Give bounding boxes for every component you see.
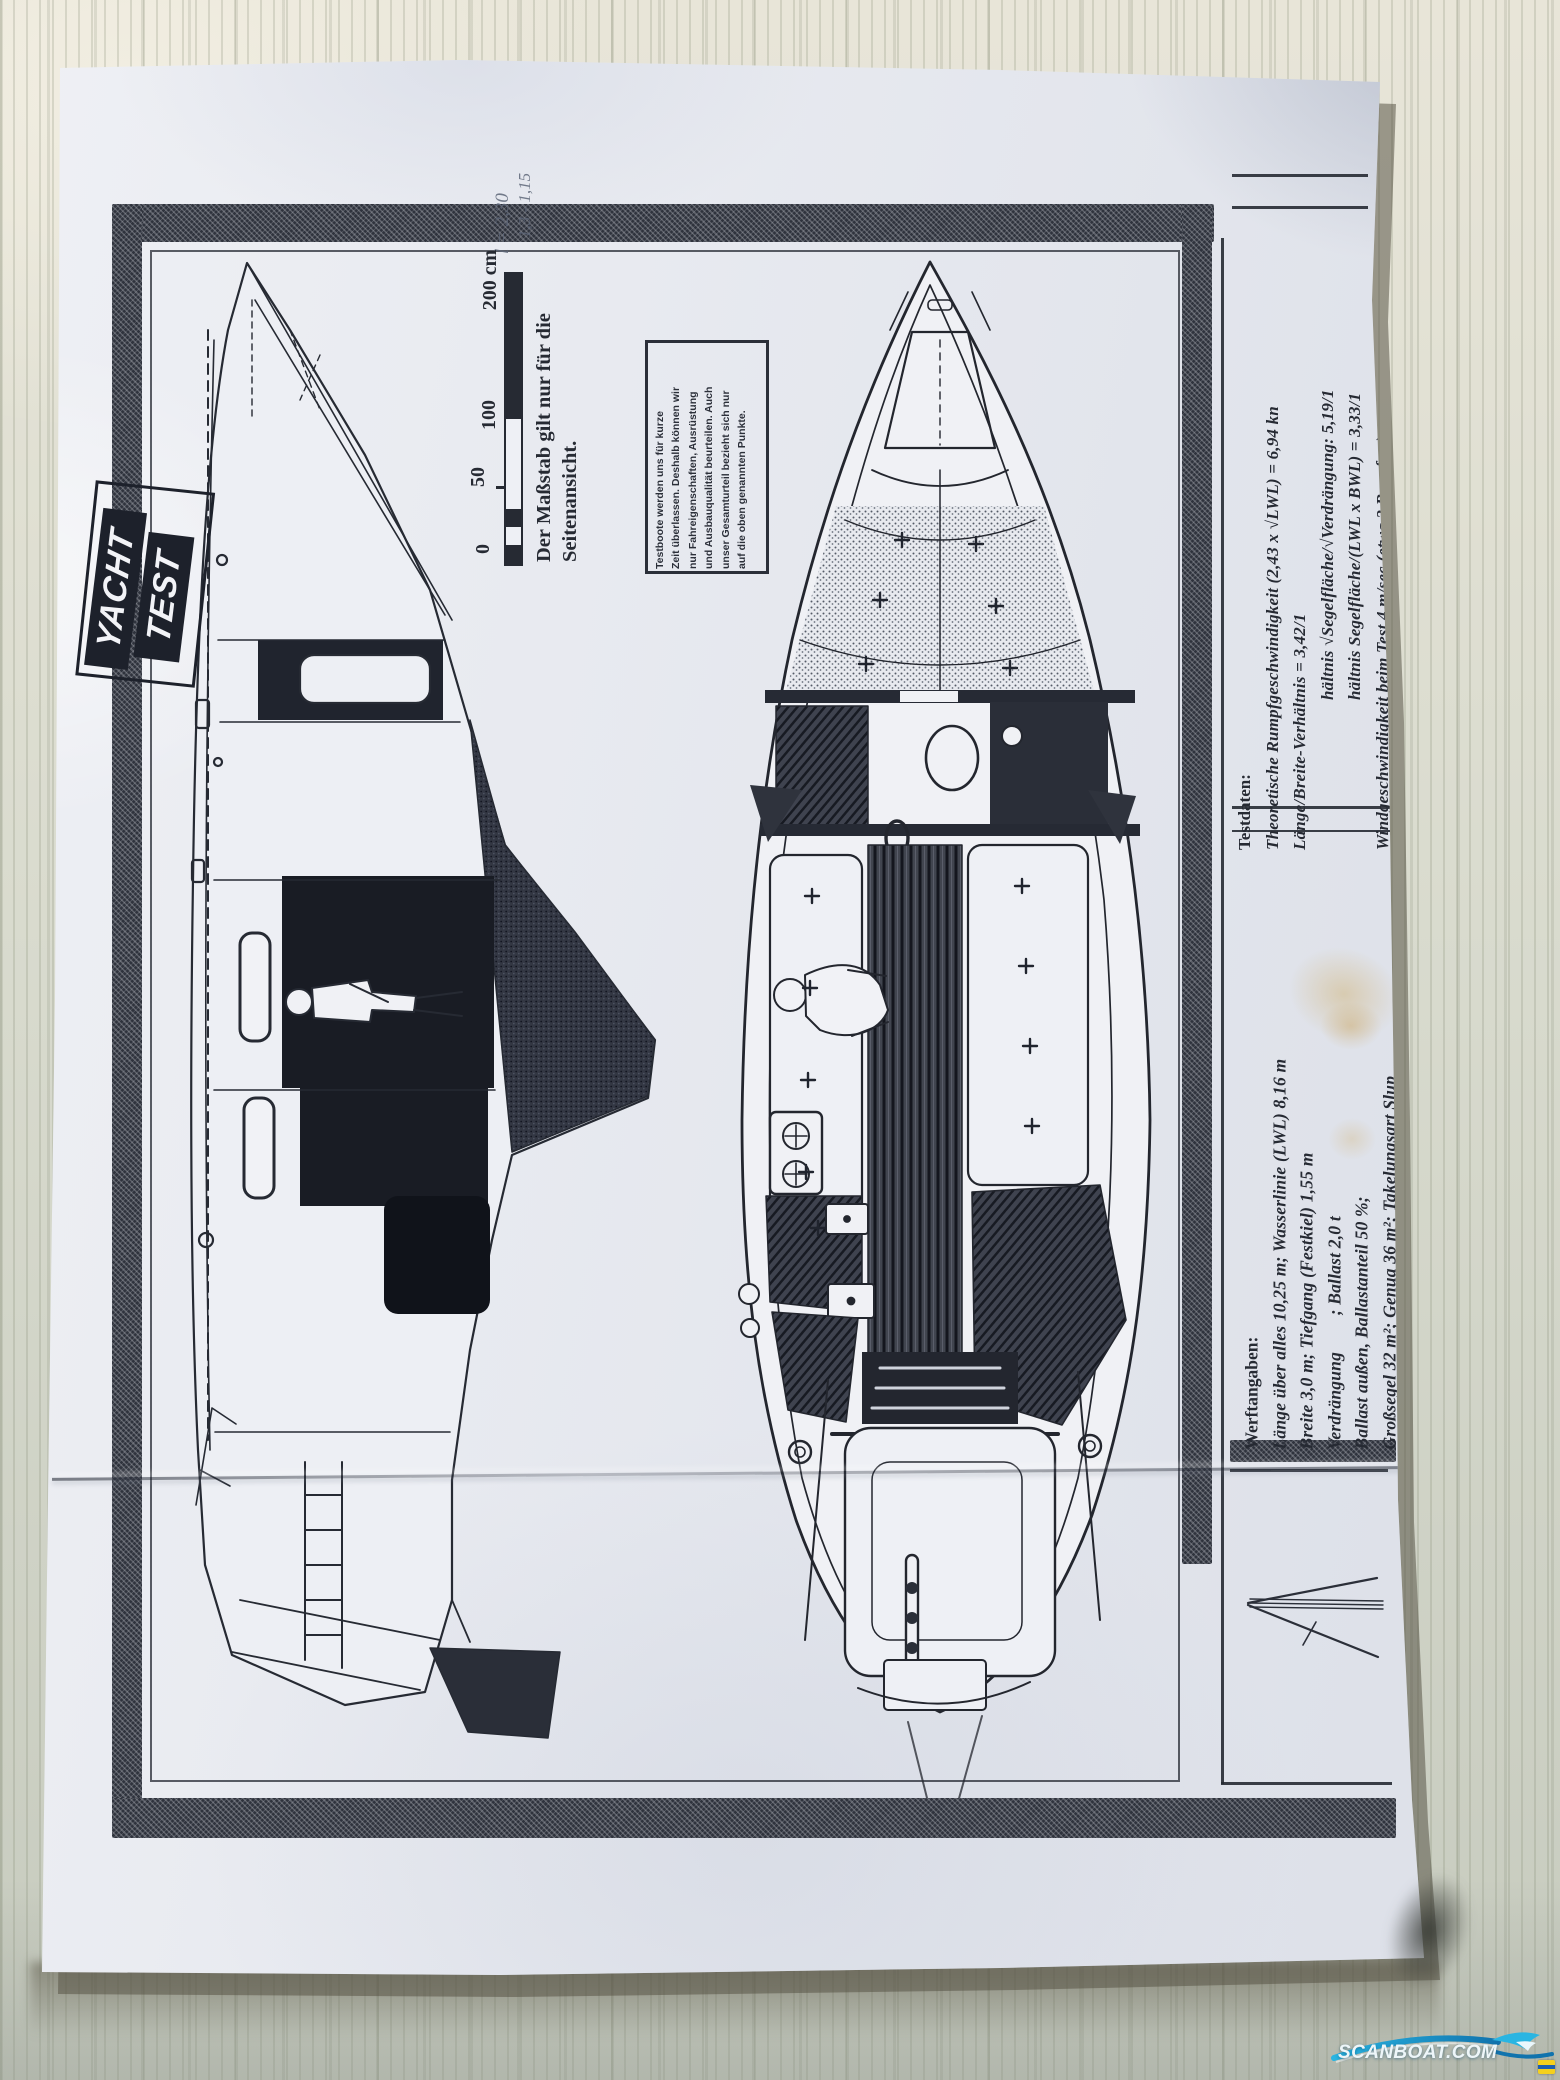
column-rule-vertical <box>1221 238 1224 1784</box>
disclaimer-line: nur Fahreigenschaften, Ausrüstung <box>685 341 701 569</box>
disclaimer-line: und Ausbauqualität beurteilen. Auch <box>701 341 717 569</box>
testdaten-line: Länge/Breite-Verhältnis = 3,42/1 <box>1286 230 1314 850</box>
scale-segment <box>506 545 521 564</box>
coffee-stain <box>1320 1002 1382 1050</box>
sailplan-corner-sketch <box>1248 1578 1383 1657</box>
logo-test-text: TEST <box>139 547 188 647</box>
watermark-text: SCANBOAT.COM <box>1338 2042 1538 2064</box>
column-rule <box>1221 1782 1392 1785</box>
scale-label-100: 100 <box>478 390 500 440</box>
scale-label-0: 0 <box>472 537 494 561</box>
coffee-stain <box>1328 1118 1376 1160</box>
disclaimer-line: Testboote werden uns für kurze <box>652 341 668 569</box>
handwritten-note: l = 2,30 1,3 - 1,15 <box>492 94 540 254</box>
disclaimer-text: Testboote werden uns für kurze Zeit über… <box>652 341 756 569</box>
disclaimer-line: unser Gesamturteil bezieht sich nur <box>718 341 734 569</box>
scale-tick <box>496 486 505 489</box>
scale-bar <box>504 272 523 566</box>
werftangaben-heading: Werftangaben: <box>1239 945 1267 1450</box>
testdaten-line: Theoretische Rumpfgeschwindigkeit (2,43 … <box>1259 230 1287 850</box>
column-rule <box>1232 206 1368 209</box>
paper-sheet: YACHT TEST l = 2,30 1,3 - 1,15 200 cm 10… <box>0 0 1560 2080</box>
scale-segment <box>506 509 521 527</box>
scale-label-50: 50 <box>467 457 489 497</box>
testdaten-line: hältnis √Segelfläche/√Verdrängung: 5,19/… <box>1314 230 1342 850</box>
disclaimer-line: Zeit überlassen. Deshalb können wir <box>668 341 684 569</box>
scale-segment <box>506 274 521 419</box>
column-rule <box>1232 174 1368 177</box>
scale-caption: Der Maßstab gilt nur für die Seitenansic… <box>531 250 585 562</box>
watermark-flag-icon <box>1538 2060 1555 2074</box>
scale-caption-line: Der Maßstab gilt nur für die <box>531 250 557 562</box>
testdaten-heading: Testdaten: <box>1231 230 1259 850</box>
frame-border-bottom <box>112 1798 1396 1838</box>
disclaimer-line: auf die oben genannten Punkte. <box>734 341 750 569</box>
frame-border-left <box>112 204 142 1836</box>
werftangaben-line: Länge über alles 10,25 m; Wasserlinie (L… <box>1266 945 1294 1450</box>
photo-of-yacht-test-sheet: YACHT TEST l = 2,30 1,3 - 1,15 200 cm 10… <box>0 0 1560 2080</box>
scale-label-200: 200 cm <box>479 235 501 325</box>
handwriting-line: l = 2,30 <box>492 94 514 254</box>
scale-caption-line: Seitenansicht. <box>557 250 583 562</box>
handwriting-line: 1,3 - 1,15 <box>514 94 536 254</box>
frame-border-right <box>1182 204 1212 1564</box>
frame-border-top <box>112 204 1214 242</box>
testdaten-line: hältnis Segelfläche/(LWL x BWL) = 3,33/1 <box>1341 230 1369 850</box>
